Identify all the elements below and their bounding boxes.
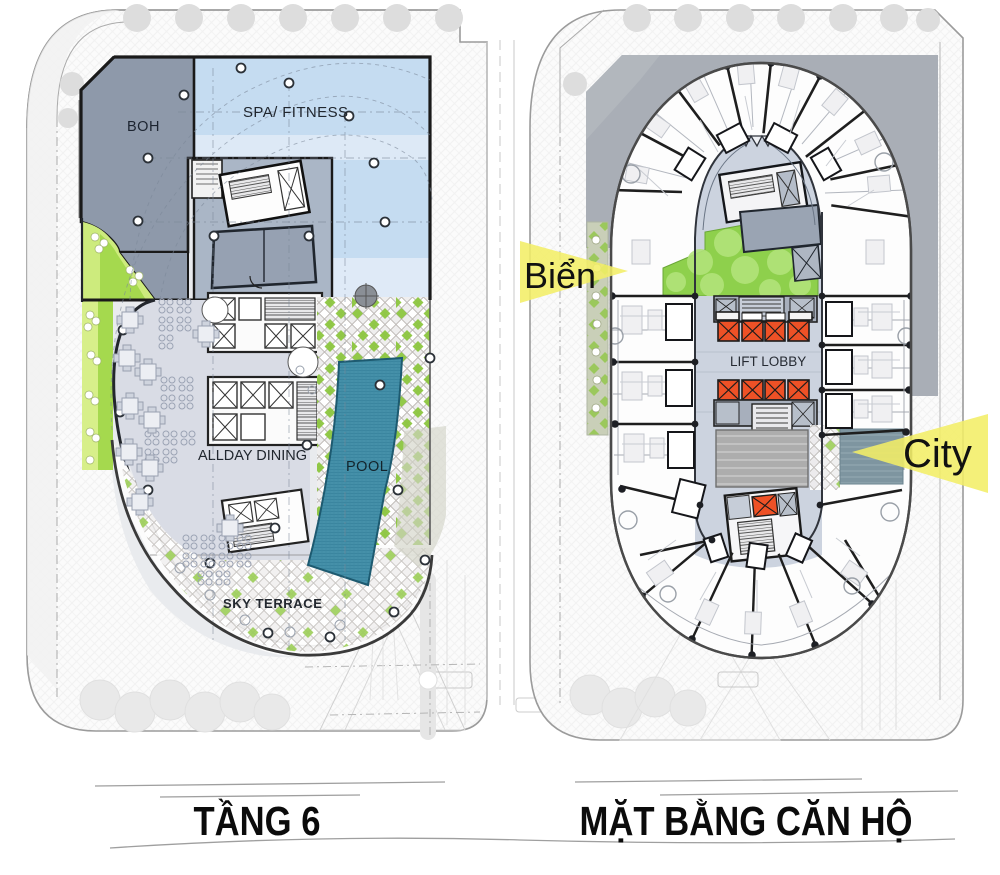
svg-text:TẦNG 6: TẦNG 6 [194,798,321,844]
svg-text:BOH: BOH [127,119,160,135]
svg-text:LIFT LOBBY: LIFT LOBBY [730,354,806,369]
svg-text:City: City [903,432,972,476]
svg-text:Biển: Biển [524,255,596,296]
svg-text:POOL: POOL [346,459,388,475]
svg-text:SPA/ FITNESS: SPA/ FITNESS [243,104,348,121]
svg-text:ALLDAY DINING: ALLDAY DINING [198,448,307,464]
svg-text:MẶT BẰNG CĂN HỘ: MẶT BẰNG CĂN HỘ [580,798,913,844]
svg-text:SKY TERRACE: SKY TERRACE [223,596,323,611]
